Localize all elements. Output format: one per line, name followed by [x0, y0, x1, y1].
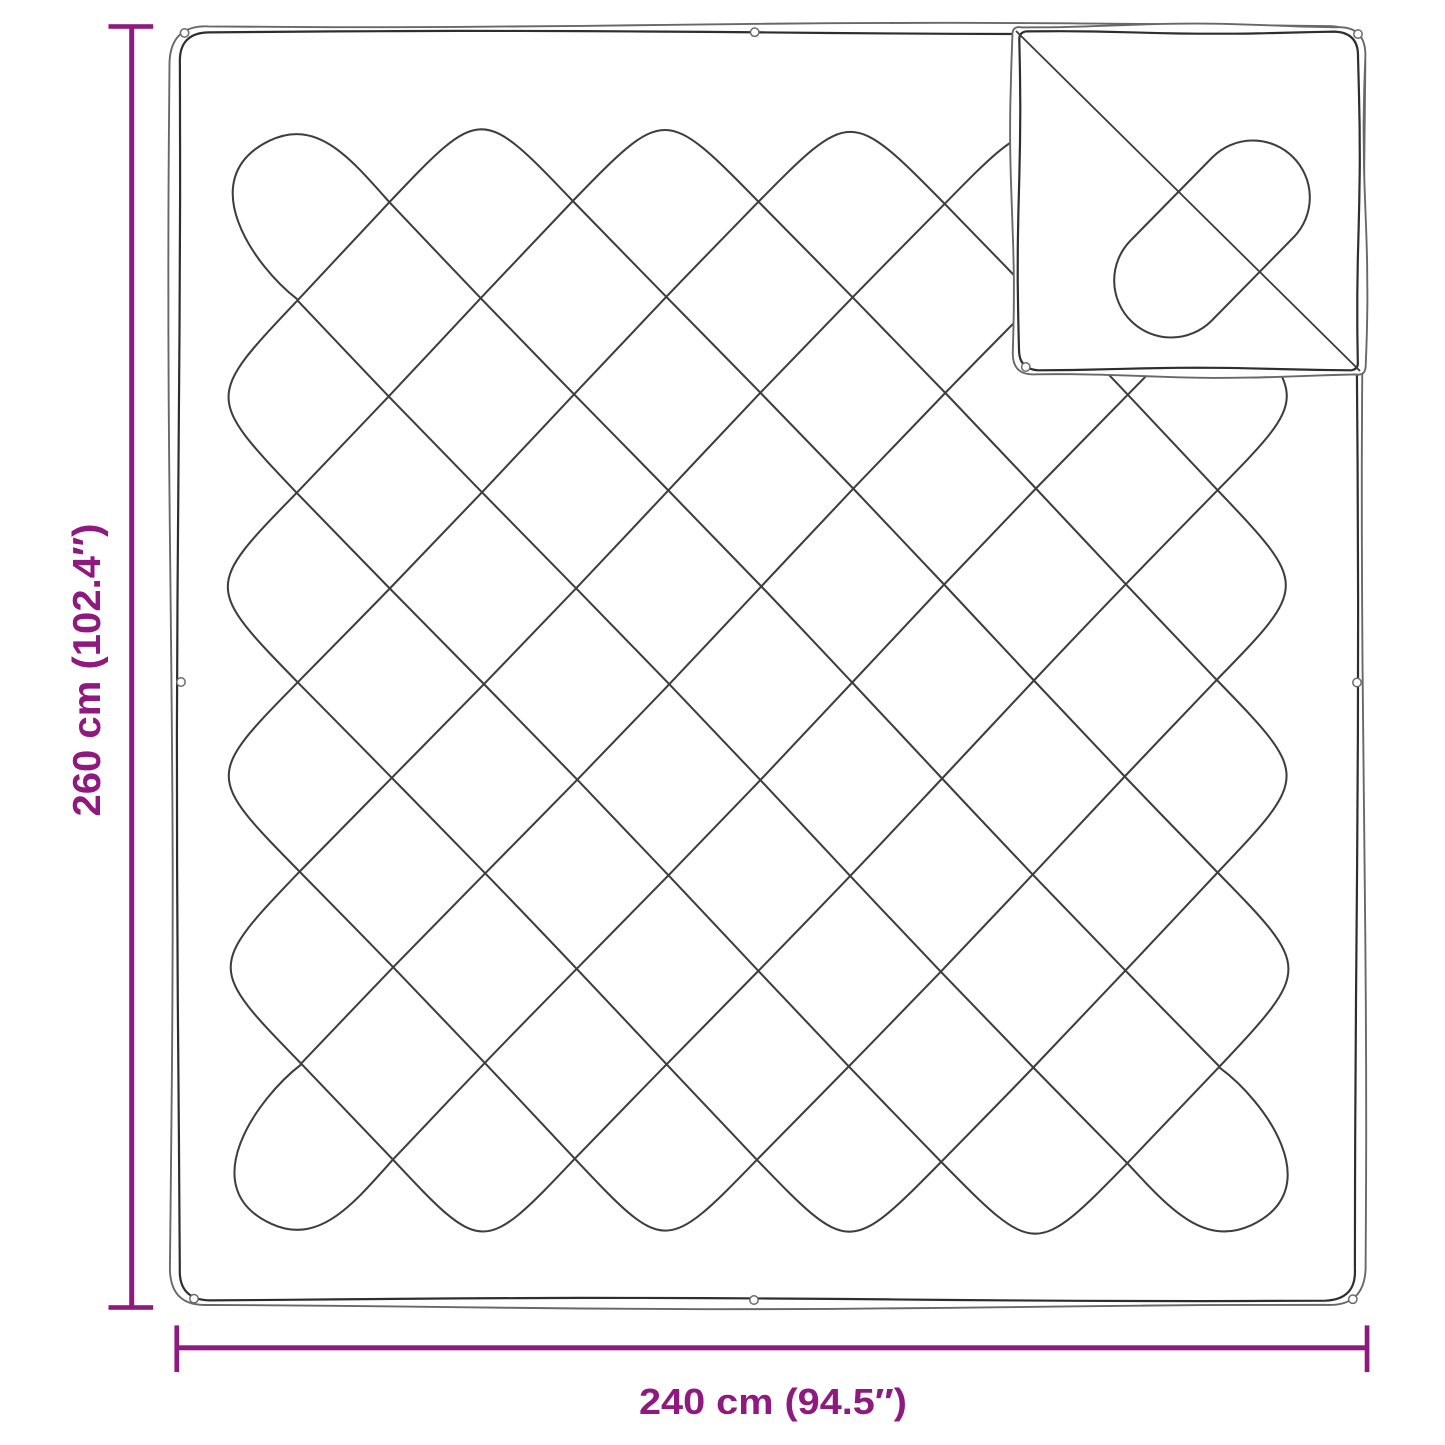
- svg-text:240 cm (94.5″): 240 cm (94.5″): [639, 1381, 907, 1422]
- svg-text:260 cm (102.4″): 260 cm (102.4″): [66, 524, 109, 817]
